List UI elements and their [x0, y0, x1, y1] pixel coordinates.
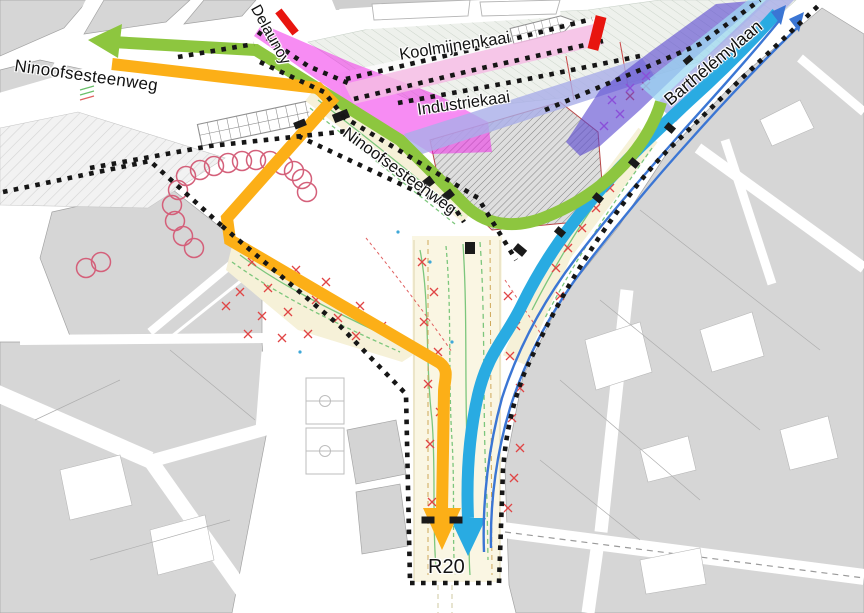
map-canvas: Ninoofsesteenweg Delaunoy Koolmijnenkaai…: [0, 0, 864, 613]
label-r20: R20: [428, 556, 465, 579]
